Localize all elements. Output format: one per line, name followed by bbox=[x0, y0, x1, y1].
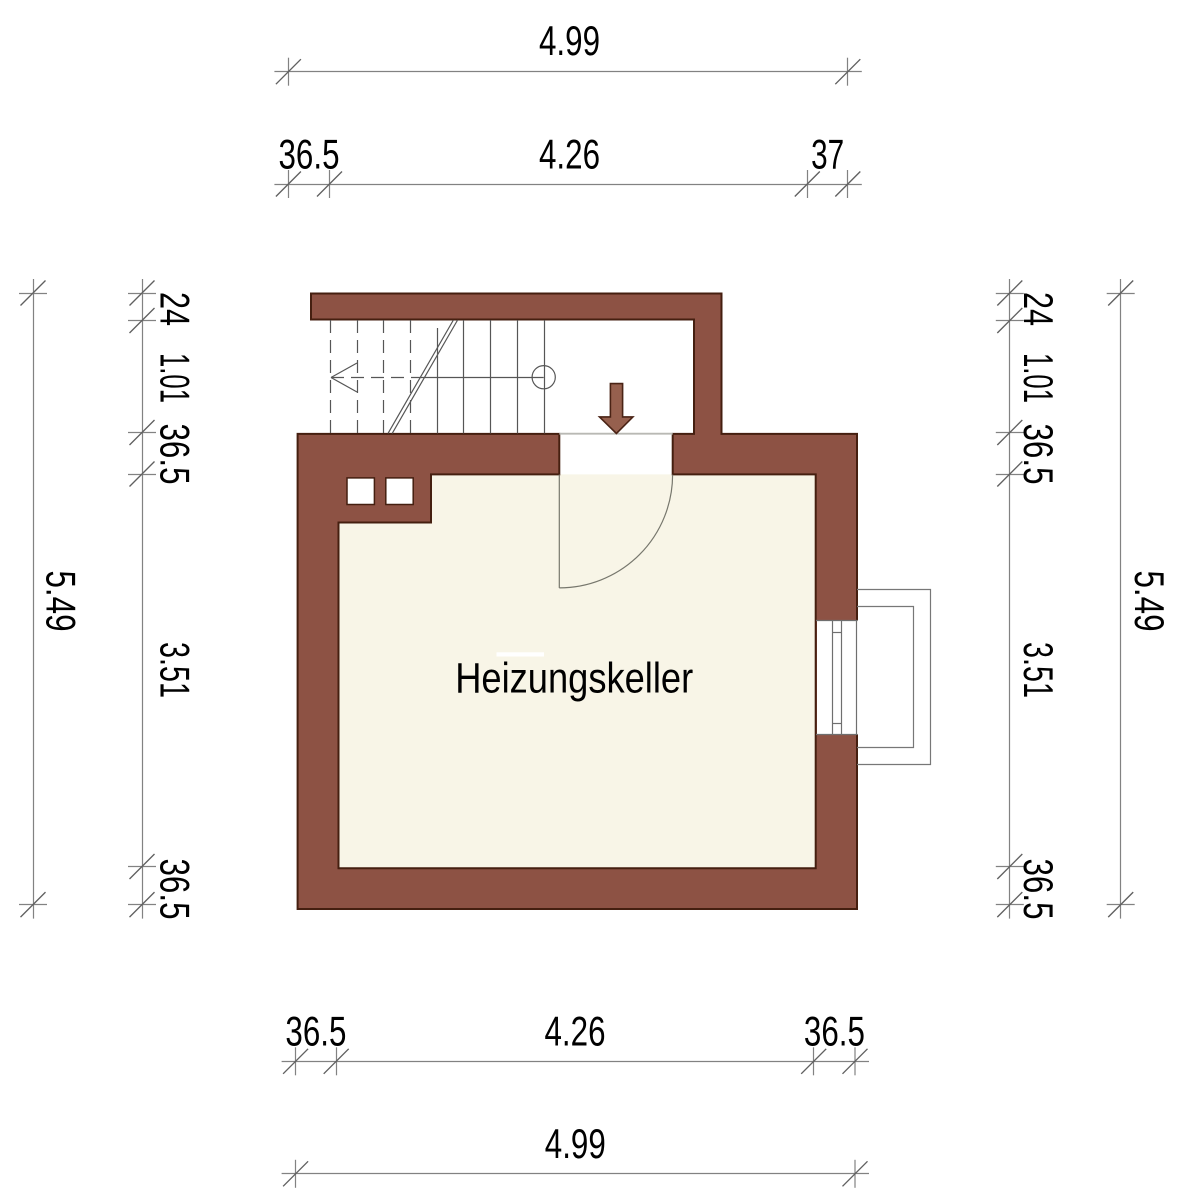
svg-text:36.5: 36.5 bbox=[152, 424, 199, 485]
svg-text:4.26: 4.26 bbox=[539, 131, 600, 178]
svg-text:36.5: 36.5 bbox=[152, 859, 199, 920]
svg-text:36.5: 36.5 bbox=[285, 1008, 346, 1055]
svg-text:4.26: 4.26 bbox=[545, 1008, 606, 1055]
svg-text:24: 24 bbox=[152, 292, 199, 326]
svg-text:24: 24 bbox=[1015, 292, 1062, 326]
svg-text:5.49: 5.49 bbox=[38, 571, 85, 632]
svg-text:Heizungskeller: Heizungskeller bbox=[455, 656, 693, 703]
svg-text:4.99: 4.99 bbox=[545, 1120, 606, 1167]
svg-text:3.51: 3.51 bbox=[152, 642, 199, 698]
svg-text:3.51: 3.51 bbox=[1015, 642, 1062, 698]
svg-text:1.01: 1.01 bbox=[152, 353, 199, 403]
svg-text:37: 37 bbox=[811, 131, 844, 178]
svg-text:36.5: 36.5 bbox=[279, 131, 340, 178]
svg-text:36.5: 36.5 bbox=[1015, 424, 1062, 485]
svg-text:5.49: 5.49 bbox=[1126, 571, 1173, 632]
svg-text:4.99: 4.99 bbox=[539, 17, 600, 64]
svg-text:36.5: 36.5 bbox=[804, 1008, 865, 1055]
svg-text:36.5: 36.5 bbox=[1015, 859, 1062, 920]
svg-text:1.01: 1.01 bbox=[1015, 353, 1062, 403]
